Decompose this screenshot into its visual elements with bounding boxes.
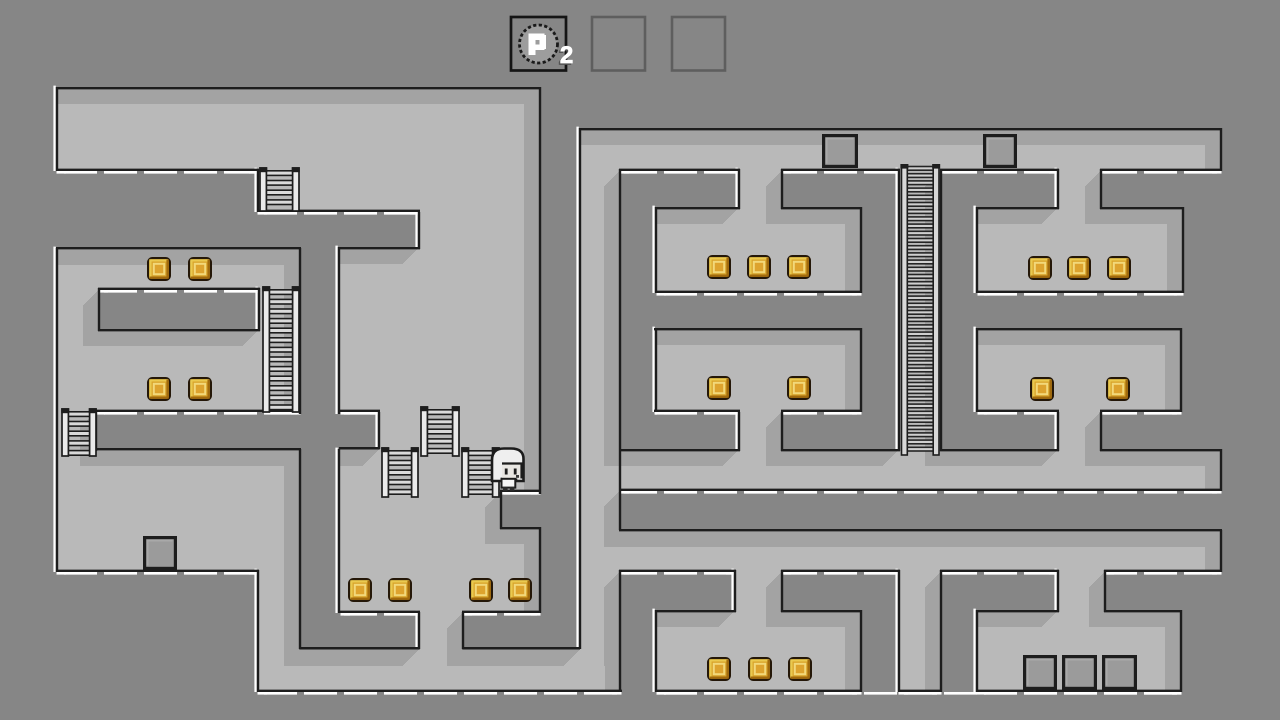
svg-text:2: 2 bbox=[560, 42, 573, 69]
